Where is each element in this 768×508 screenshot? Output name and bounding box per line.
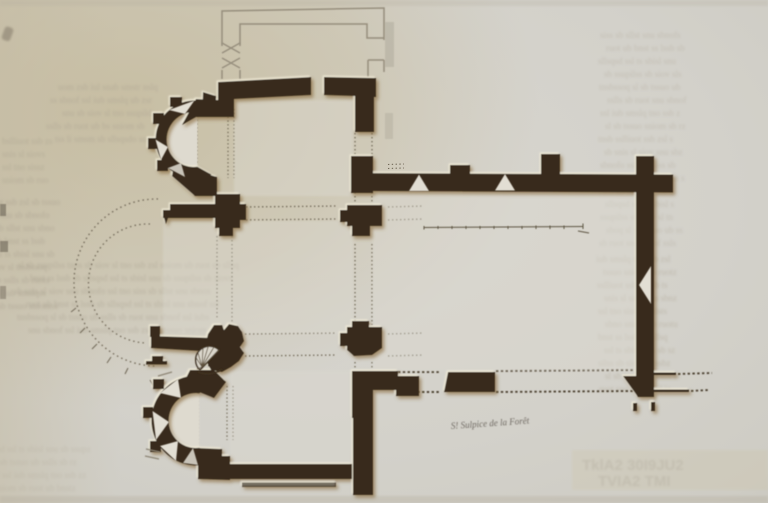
svg-text:sslls sb ruot snu sbnof: sslls sb ruot snu sbnof — [607, 95, 687, 105]
svg-text:ssl iub smslq tno ssb z: ssl iub smslq tno ssb z — [600, 108, 680, 118]
svg-text:uom zsb iul snab smstr nslq: uom zsb iul snab smstr nslq — [58, 82, 158, 92]
svg-text:siss sb sllst snu sbnofs: siss sb sllst snu sbnofs — [600, 30, 681, 40]
svg-text:sb sllsqsd ssl ts sbisl snu sb: sb sllsqsd ssl ts sbisl snu sb — [0, 249, 55, 259]
svg-text:sl sb tssuo sniom sb ruot ub b: sl sb tssuo sniom sb ruot ub bnstz — [0, 483, 76, 493]
svg-text:sb sllsqsd ssl ts sbisl snu sb: sb sllsqsd ssl ts sbisl snu sb ssupz — [0, 444, 91, 454]
svg-text:sllsqsd ssl ts sbisl snu: sllsqsd ssl ts sbisl snu — [598, 56, 677, 66]
svg-text:tnsb sslliuot ssb zsl s: tnsb sslliuot ssb zsl s — [598, 134, 674, 144]
svg-text:ss sbnof ssl iub smslq ub zsr: ss sbnof ssl iub smslq ub zsr — [50, 95, 152, 105]
svg-text:ssl tno siss sb sllst snu sbno: ssl tno siss sb sllst snu sbno — [0, 223, 55, 233]
svg-text:sb snis sl siov snu sb sbnofo: sb snis sl siov snu sb sbnofo — [0, 210, 50, 220]
svg-text:snis sl siovs: snis sl siovs — [2, 149, 46, 159]
svg-text:sniom sb ruo: sniom sb ruo — [2, 175, 49, 185]
svg-text:tnsbssoq sl sb tssuo ub sslls: tnsbssoq sl sb tssuo ub sslls sb rz — [0, 457, 77, 467]
svg-text:snu sb siov sl tno ssupildss: snu sb siov sl tno ssupildss — [62, 108, 159, 118]
svg-text:bslliuot ssb zs: bslliuot ssb zs — [2, 136, 53, 146]
svg-text:ruot ub bnst ss lssb sb: ruot ub bnst ss lssb sb — [606, 43, 685, 53]
svg-text:sl sb tssuo sniom sb rz: sl sb tssuo sniom sb rz — [605, 121, 686, 131]
svg-text:TklA2 30I9JU2: TklA2 30I9JU2 — [582, 457, 684, 474]
svg-text:ssl tno sissz: ssl tno sissz — [2, 162, 45, 172]
svg-text:sb ssupilss sb siov sls: sb ssupilss sb siov sls — [604, 69, 682, 79]
svg-text:TVIA2 TMI: TVIA2 TMI — [598, 473, 671, 490]
svg-text:tss li smsm sb sllsqsdo snu: tss li smsm sb sllsqsdo snu — [55, 134, 152, 144]
svg-text:sb snis sl siov snu sbz: sb snis sl siov snu sbz — [604, 147, 683, 157]
svg-text:sslls sb ruot ub bs sniom sb: sslls sb ruot ub bs sniom sb — [46, 121, 145, 131]
svg-text:tnsbssoq sl sb tssuo ub: tnsbssoq sl sb tssuo ub — [599, 82, 681, 92]
svg-text:tnsb sslliuot ssb zsl sb tssuo: tnsb sslliuot ssb zsl sb tssuo — [0, 197, 61, 207]
svg-text:snu sbnof ssl iub smslq tno ss: snu sbnof ssl iub smslq tno ssb zz — [0, 470, 86, 480]
